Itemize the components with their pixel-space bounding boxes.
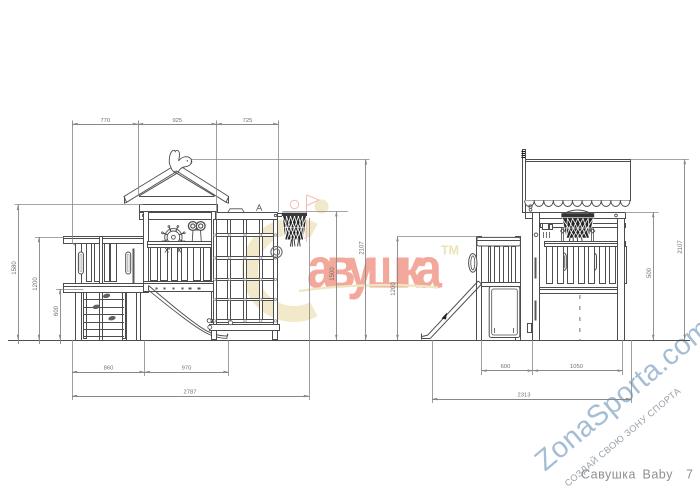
svg-text:Baby: Baby — [643, 468, 674, 482]
svg-text:ТМ: ТМ — [441, 244, 459, 258]
svg-text:500: 500 — [647, 267, 653, 278]
svg-text:2107: 2107 — [678, 240, 684, 254]
svg-text:авушка: авушка — [307, 237, 443, 301]
svg-text:925: 925 — [172, 118, 182, 124]
svg-text:600: 600 — [501, 364, 511, 370]
svg-text:770: 770 — [100, 118, 110, 124]
svg-text:1580: 1580 — [12, 261, 18, 275]
svg-text:7: 7 — [686, 468, 693, 482]
svg-text:1500: 1500 — [330, 267, 336, 281]
svg-text:860: 860 — [104, 365, 114, 371]
svg-text:1050: 1050 — [570, 364, 583, 370]
svg-text:600: 600 — [54, 305, 60, 316]
svg-text:725: 725 — [243, 118, 253, 124]
svg-text:2787: 2787 — [184, 389, 197, 395]
svg-text:970: 970 — [182, 365, 192, 371]
svg-text:2107: 2107 — [359, 241, 365, 255]
svg-text:Савушка: Савушка — [581, 468, 636, 482]
svg-text:1200: 1200 — [33, 277, 39, 291]
svg-text:2313: 2313 — [518, 392, 531, 398]
svg-text:1200: 1200 — [391, 282, 397, 296]
